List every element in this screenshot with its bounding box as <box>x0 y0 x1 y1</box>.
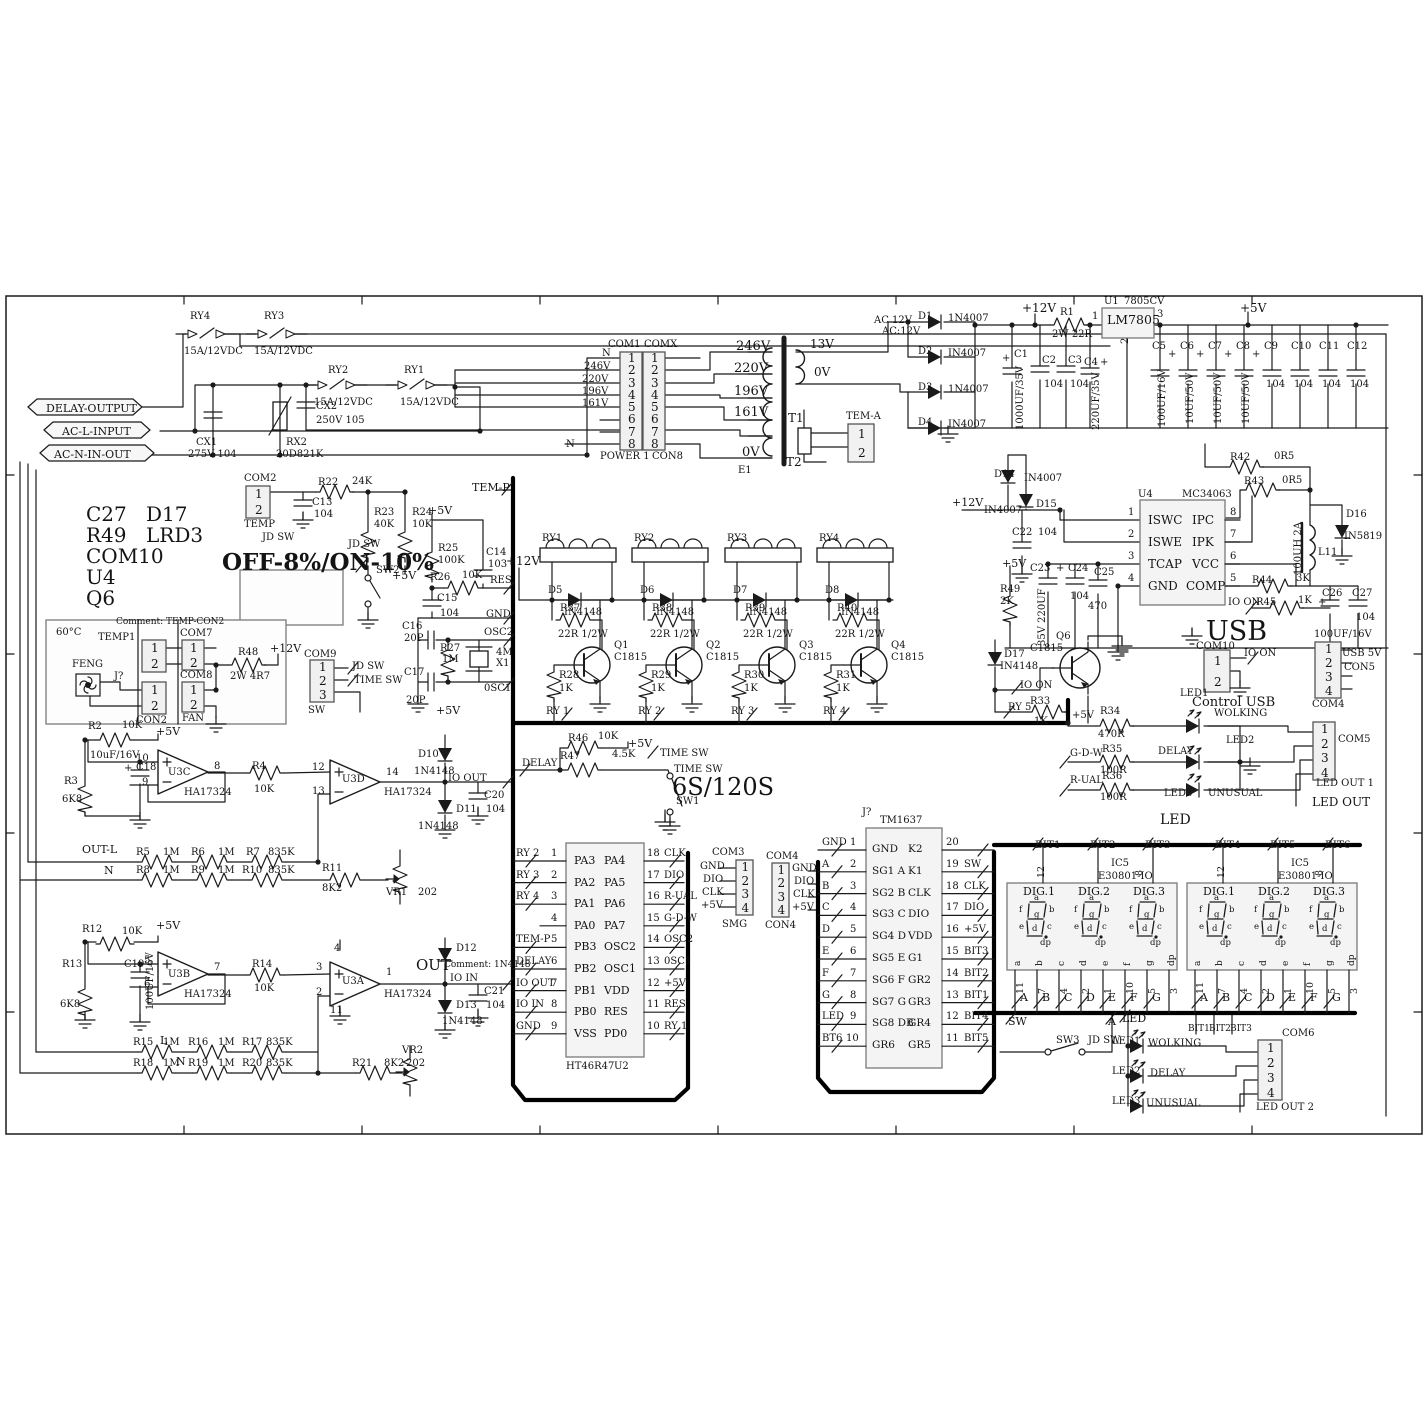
label-ry-1-145: RY 1 <box>546 707 569 717</box>
label-10k-504: 10K <box>122 721 142 731</box>
label-ry1-296: RY1 <box>404 366 424 376</box>
label-n-537: N <box>104 865 114 876</box>
label-+12v-428: +12V <box>270 643 301 654</box>
label-f-203: f <box>1129 906 1132 915</box>
pin-con2-2: 2 <box>151 700 159 712</box>
label-comx-309: COMX <box>644 340 677 350</box>
label-1n4148-527: 1N4148 <box>418 822 459 832</box>
label-bit5-234: BIT5 <box>1270 840 1296 851</box>
label-j-420: J? <box>114 672 123 682</box>
label-22r-1-2w-150: 22R 1/2W <box>650 630 700 640</box>
label-104-529: 104 <box>486 805 505 815</box>
label-ry3-156: RY3 <box>727 534 747 544</box>
label-20-107: 20 <box>946 838 959 848</box>
label-13-519: 13 <box>312 787 325 797</box>
label-196v-319: 196V <box>734 385 768 398</box>
label-c14-397: C14 <box>486 548 506 558</box>
label-d13-584: D13 <box>456 1001 477 1011</box>
label-10-105: 10 <box>846 1034 859 1044</box>
label-2-10: 2 <box>1128 530 1134 540</box>
label-12-68: 12 <box>647 979 660 989</box>
label-103-398: 103 <box>488 560 507 570</box>
label-sw1-557: SW1 <box>676 797 700 807</box>
label-+5v-69: +5V <box>664 979 686 989</box>
label-r42-441: R42 <box>1230 453 1250 463</box>
label-res-73: RES <box>604 1006 628 1017</box>
label-d8-167: D8 <box>825 586 839 596</box>
label-com4-483: COM4 <box>1312 700 1344 710</box>
label-u3d-520: U3D <box>342 775 365 785</box>
label-104-347: 104 <box>1070 380 1089 390</box>
label-b-83: B <box>822 882 829 892</box>
label-104-449: 104 <box>1070 592 1089 602</box>
label-time-sw-432: TIME SW <box>354 676 402 686</box>
label-r18-596: R18 <box>133 1059 153 1069</box>
label-r16-591: R16 <box>188 1038 208 1048</box>
label-k2-108: K2 <box>908 844 923 855</box>
label-c1815-172: C1815 <box>891 653 924 663</box>
label-r28-143: R28 <box>559 671 579 681</box>
label-c-273: c <box>1238 961 1247 966</box>
label-d17-473: D17 <box>1004 650 1025 660</box>
label-q2-151: Q2 <box>706 641 721 651</box>
label-f-227: F <box>1130 992 1138 1003</box>
label-gnd-79: GND <box>872 844 898 855</box>
label-1k-480: 1K <box>1034 717 1048 727</box>
label-gr6-106: GR6 <box>872 1040 895 1051</box>
label-c25-450: C25 <box>1094 568 1114 578</box>
label-n-307: N <box>566 440 575 450</box>
label-+5v-505: +5V <box>156 726 180 737</box>
label-a-625: A <box>1108 1016 1116 1027</box>
label-clk-51: CLK <box>664 849 686 859</box>
label-tem-a-326: TEM-A <box>846 412 881 422</box>
label-r13-564: R13 <box>62 960 82 970</box>
label-1-8: 1 <box>1128 508 1134 518</box>
label-in4148-474: IN4148 <box>1000 662 1038 672</box>
label-220uf-35v-350: 220UF/35V <box>1092 372 1102 430</box>
label-com6-636: COM6 <box>1282 1029 1314 1039</box>
label-ry-3-165: RY 3 <box>731 707 754 717</box>
label-delay-output-298: DELAY-OUTPUT <box>46 403 137 414</box>
label-22r-1-2w-170: 22R 1/2W <box>835 630 885 640</box>
pin-com4r-3: 3 <box>1325 671 1333 683</box>
pin-com3-3: 3 <box>742 888 750 900</box>
label-r-ual-490: R-UAL <box>1070 776 1103 786</box>
label-835k-543: 835K <box>268 866 295 876</box>
label-g-228: g <box>1146 960 1155 966</box>
label-ry-4-30: RY 4 <box>516 892 539 902</box>
label-r10-542: R10 <box>242 866 262 876</box>
label-f-225: f <box>1124 963 1133 966</box>
label-e-279: e <box>1282 961 1291 966</box>
label-c17-412: C17 <box>404 668 424 678</box>
label-led-out-2-637: LED OUT 2 <box>1256 1103 1314 1113</box>
label-r49-374: R49 <box>86 525 127 545</box>
label-dp-231: dp <box>1168 954 1177 966</box>
label-0v-323: 0V <box>814 366 830 378</box>
label-dp-248: dp <box>1220 939 1231 948</box>
label-pa7-61: PA7 <box>604 920 625 931</box>
label-+5v-391: +5V <box>428 505 452 516</box>
label-clk-612: CLK <box>702 888 724 898</box>
label-11-71: 11 <box>647 1000 660 1010</box>
label-ipc-17: IPC <box>1192 514 1214 526</box>
label-com7-423: COM7 <box>180 629 212 639</box>
label-100r-492: 100R <box>1100 793 1127 803</box>
label-e-224: E <box>1108 992 1116 1003</box>
label-12-181: 12 <box>1037 866 1047 878</box>
label-7-18: 7 <box>1230 530 1236 540</box>
label-20d821k-304: 20D821K <box>276 450 323 460</box>
label-2w-22r-340: 2W 22R <box>1052 330 1092 340</box>
label-u3c-513: U3C <box>168 768 190 778</box>
label-a-250: a <box>1269 894 1274 903</box>
label-4-33: 4 <box>551 914 557 924</box>
label-e-222: e <box>1102 961 1111 966</box>
label-c24-448: C24 <box>1068 564 1088 574</box>
label-100k-396: 100K <box>438 556 465 566</box>
label-ha17324-579: HA17324 <box>384 990 432 1000</box>
label-io-on-477: IO ON <box>1020 681 1052 691</box>
label-a-241: a <box>1214 894 1219 903</box>
label-ac-n-in-out-300: AC-N-IN-OUT <box>54 449 131 460</box>
label-1k-463: 1K <box>1298 596 1312 606</box>
label-ry2-146: RY2 <box>634 534 654 544</box>
label-pa6-58: PA6 <box>604 898 625 909</box>
label-io-in-44: IO IN <box>516 1000 544 1010</box>
pin-com9-1: 1 <box>319 661 327 673</box>
label-104-365: 104 <box>1266 380 1285 390</box>
label-100uf-16v-468: 100UF/16V <box>1314 630 1372 640</box>
label-11-576: 11 <box>330 1006 343 1016</box>
pin-com4l-3: 3 <box>778 891 786 903</box>
label-2-574: 2 <box>316 988 322 998</box>
label-tem-p-35: TEM-P <box>516 935 550 945</box>
label-c12-370: C12 <box>1347 342 1367 352</box>
label-r4-516: R4 <box>252 762 266 772</box>
label-q1-141: Q1 <box>614 641 629 651</box>
label-r27-408: R27 <box>440 644 460 654</box>
label-d-199: d <box>1087 925 1092 934</box>
label-jd-sw-431: JD SW <box>352 662 384 672</box>
label-196v-313: 196V <box>582 387 608 397</box>
label-pd0-76: PD0 <box>604 1028 627 1039</box>
label-r31-173: R31 <box>836 671 856 681</box>
label-tm1637-614: TM1637 <box>880 816 922 826</box>
label-2-5: 2 <box>1121 338 1131 344</box>
label-r48-426: R48 <box>238 648 258 658</box>
label-led-out-502: LED OUT <box>1312 796 1370 808</box>
label-a-202: a <box>1144 894 1149 903</box>
label-d16-457: D16 <box>1346 510 1367 520</box>
label-220v-318: 220V <box>734 362 768 375</box>
label-1m-539: 1M <box>163 866 180 876</box>
label-+-362: + <box>1252 350 1260 360</box>
label-g-262: g <box>1324 911 1329 920</box>
label-gnd-618: GND <box>792 864 817 874</box>
label-d12-581: D12 <box>456 944 477 954</box>
pin-com4r-4: 4 <box>1325 685 1333 697</box>
label-8k2-545: 8K2 <box>322 884 342 894</box>
label-u2-607: U2 <box>614 1062 629 1072</box>
pin-com10-1: 1 <box>1214 655 1222 667</box>
label-161v-320: 161V <box>734 406 768 419</box>
label-0r5-444: 0R5 <box>1282 476 1302 486</box>
label-d1-330: D1 <box>918 312 932 322</box>
label-+-446: + <box>1056 564 1064 574</box>
label-bit1-176: BIT1 <box>1035 840 1061 851</box>
pin-com4r-2: 2 <box>1325 657 1333 669</box>
label-+-465: + <box>1318 598 1326 608</box>
label-io-out-41: IO OUT <box>516 979 555 989</box>
label-b-186: b <box>1049 906 1054 915</box>
label-1n4007-331: 1N4007 <box>948 314 989 324</box>
label-c10-366: C10 <box>1291 342 1311 352</box>
label-3-573: 3 <box>316 963 322 973</box>
label-r46-549: R46 <box>568 734 588 744</box>
label-b-195: b <box>1104 906 1109 915</box>
label-+5v-351: +5V <box>1240 302 1266 314</box>
label-e-92: E <box>822 947 829 957</box>
label-r2-503: R2 <box>88 722 102 732</box>
label-18-112: 18 <box>946 882 959 892</box>
label-in4007-435: IN4007 <box>1024 474 1062 484</box>
label-835k-536: 835K <box>268 848 295 858</box>
label-202-547: 202 <box>418 888 437 898</box>
label-+5v-560: +5V <box>156 920 180 931</box>
label-60-c-417: 60°C <box>56 628 81 638</box>
pin-com5-4: 4 <box>1321 767 1329 779</box>
label-35v-220uf-447: 35V 220UF <box>1038 588 1048 646</box>
label-c11-368: C11 <box>1319 342 1339 352</box>
label-c15-402: C15 <box>437 594 457 604</box>
label-vr2-604: VR2 <box>402 1046 423 1056</box>
label-gnd-77: GND <box>822 838 847 848</box>
label-d-276: d <box>1260 960 1269 966</box>
label-10k-400: 10K <box>462 571 482 581</box>
label-e-188: e <box>1019 923 1024 932</box>
label-ry-3-27: RY 3 <box>516 871 539 881</box>
pin-com1-1: 1 <box>628 352 636 364</box>
label-220v-312: 220V <box>582 375 608 385</box>
label-pa3-26: PA3 <box>574 855 595 866</box>
label-pb2-40: PB2 <box>574 963 596 974</box>
label-6-567: 6 <box>144 980 150 990</box>
label-sg4-d-91: SG4 D <box>872 931 906 942</box>
label-835k-601: 835K <box>266 1059 293 1069</box>
label-10uf-16v-506: 10uF/16V <box>90 751 139 761</box>
label-bit3-178: BIT3 <box>1145 840 1171 851</box>
label-d-89: D <box>822 925 830 935</box>
label-a-80: A <box>822 860 829 870</box>
label-e-254: e <box>1254 923 1259 932</box>
label-8-99: 8 <box>850 991 856 1001</box>
label-14-62: 14 <box>647 935 660 945</box>
label-c1815-162: C1815 <box>799 653 832 663</box>
label-u1-0: U1 <box>1104 297 1119 307</box>
label-vdd-120: VDD <box>908 931 932 942</box>
label-202-605: 202 <box>406 1059 425 1069</box>
label-sw-622: SW <box>1008 1016 1027 1027</box>
label-ry2-294: RY2 <box>328 366 348 376</box>
pin-com5-3: 3 <box>1321 752 1329 764</box>
label-17-115: 17 <box>946 903 959 913</box>
label-+-349: + <box>1100 358 1108 368</box>
label-dio-54: DIO <box>664 871 684 881</box>
label-rx2-303: RX2 <box>286 438 307 448</box>
label-f-95: F <box>822 969 829 979</box>
label-bit1-128: BIT1 <box>964 991 988 1001</box>
schematic-canvas: 1234567812345678121212121212123121234123… <box>0 0 1428 1428</box>
label-com5-500: COM5 <box>1338 735 1370 745</box>
label-2-81: 2 <box>850 860 856 870</box>
label-pb3-37: PB3 <box>574 941 596 952</box>
label-osc2-63: OSC2 <box>664 935 693 945</box>
label-5-566: 5 <box>144 956 150 966</box>
label-com10-376: COM10 <box>86 546 164 566</box>
label-led1-627: LED1 <box>1112 1037 1140 1047</box>
label-c2-344: C2 <box>1042 356 1056 366</box>
label-11-133: 11 <box>946 1034 959 1044</box>
label-1-78: 1 <box>850 838 856 848</box>
label-k1-111: K1 <box>908 866 923 877</box>
label-usb-5v-481: USB 5V <box>1342 649 1381 659</box>
label-con8-316: CON8 <box>652 452 683 462</box>
label-246v-311: 246V <box>584 362 610 372</box>
label-vdd-70: VDD <box>604 985 630 996</box>
label-0r5-442: 0R5 <box>1274 452 1294 462</box>
label-bit2-630: BIT2 <box>1209 1025 1231 1034</box>
label-6-20: 6 <box>1230 552 1236 562</box>
label-7-42: 7 <box>551 979 557 989</box>
label-temp-381: TEMP <box>244 520 275 530</box>
label-1m-590: 1M <box>163 1038 180 1048</box>
pin-com5-1: 1 <box>1321 723 1329 735</box>
label-e-245: e <box>1199 923 1204 932</box>
label-20p-406: 20P <box>404 634 423 644</box>
label-tem-p-416: TEM-P <box>472 482 510 493</box>
label-17-53: 17 <box>647 871 660 881</box>
label-dp-209: dp <box>1150 939 1161 948</box>
pin-com3-2: 2 <box>742 875 750 887</box>
label-bit1-629: BIT1 <box>1188 1025 1210 1034</box>
label-sw3-623: SW3 <box>1056 1036 1080 1046</box>
label-1-25: 1 <box>551 849 557 859</box>
label-bit4-233: BIT4 <box>1215 840 1241 851</box>
label-c22-439: C22 <box>1012 528 1032 538</box>
label-104-369: 104 <box>1322 380 1341 390</box>
label-com1-308: COM1 <box>608 340 640 350</box>
label-dio-117: DIO <box>908 909 929 920</box>
pin-com6-4: 4 <box>1267 1087 1275 1099</box>
label-+12v-436: +12V <box>952 497 983 508</box>
label-in4007-437: IN4007 <box>984 506 1022 516</box>
pin-com4l-4: 4 <box>778 904 786 916</box>
label-d6-147: D6 <box>640 586 654 596</box>
pin-com7-1: 1 <box>190 642 198 654</box>
label-fan-425: FAN <box>182 714 204 724</box>
label-d-247: d <box>1212 925 1217 934</box>
label-c-255: c <box>1282 923 1287 932</box>
label-a-259: a <box>1324 894 1329 903</box>
label-104-345: 104 <box>1044 380 1063 390</box>
label-c1815-142: C1815 <box>614 653 647 663</box>
label-3-4: 3 <box>1157 310 1163 320</box>
label-1k-164: 1K <box>744 684 758 694</box>
label-4m-410: 4M <box>496 648 513 658</box>
label-io-out-525: IO OUT <box>448 774 487 784</box>
label-a-184: a <box>1034 894 1039 903</box>
label-1k-174: 1K <box>836 684 850 694</box>
label-dp-266: dp <box>1330 939 1341 948</box>
label-r7-535: R7 <box>246 848 260 858</box>
label-led3-634: LED3 <box>1112 1097 1140 1107</box>
label-+5v-484: +5V <box>1072 711 1094 721</box>
label-iswc-9: ISWC <box>1148 514 1182 526</box>
label-12-130: 12 <box>946 1012 959 1022</box>
label-1-578: 1 <box>386 968 392 978</box>
pin-com1-8: 8 <box>628 438 636 450</box>
label-ry4-290: RY4 <box>190 312 210 322</box>
label-c20-528: C20 <box>484 791 504 801</box>
label-b-252: b <box>1284 906 1289 915</box>
label-io-on-471: IO ON <box>1244 649 1276 659</box>
label-0sc1-414: 0SC1 <box>484 684 511 694</box>
pin-comx-5: 5 <box>651 401 659 413</box>
pin-com4l-2: 2 <box>778 877 786 889</box>
label-c3-346: C3 <box>1068 356 1082 366</box>
label-con4-617: CON4 <box>765 921 796 931</box>
pin-comx-6: 6 <box>651 413 659 425</box>
label-f-242: f <box>1199 906 1202 915</box>
label-d4-336: D4 <box>918 418 932 428</box>
label-9-48: 9 <box>551 1022 557 1032</box>
label-b-261: b <box>1339 906 1344 915</box>
label-18-50: 18 <box>647 849 660 859</box>
label-r38-149: R38 <box>652 604 672 614</box>
label-b-215: B <box>1042 992 1050 1003</box>
label-0v-321: 0V <box>742 446 760 459</box>
label-+5v-119: +5V <box>964 925 986 935</box>
label-104-587: 104 <box>486 1001 505 1011</box>
label-104-371: 104 <box>1350 380 1369 390</box>
label-gnd-47: GND <box>516 1022 541 1032</box>
label-c13-385: C13 <box>312 498 332 508</box>
label-ac-l-input-299: AC-L-INPUT <box>62 426 131 437</box>
label-sg7-g-100: SG7 G <box>872 997 906 1008</box>
label-gr4-132: GR4 <box>908 1018 931 1029</box>
label-q6-475: Q6 <box>1056 632 1071 642</box>
label-dio-116: DIO <box>964 903 984 913</box>
label-sg1-a-82: SG1 A <box>872 866 905 877</box>
label-d-256: d <box>1267 925 1272 934</box>
label-+5v-394: +5V <box>392 570 416 581</box>
pin-com3-1: 1 <box>742 861 750 873</box>
pin-com4l-1: 1 <box>778 864 786 876</box>
label-10k-559: 10K <box>122 927 142 937</box>
label-comment-1n4148-582: Comment: 1N4148 <box>444 961 531 970</box>
label-835k-594: 835K <box>266 1038 293 1048</box>
pin-com2-1: 1 <box>255 488 263 500</box>
label-f-185: f <box>1019 906 1022 915</box>
label-+12v-433: +12V <box>506 555 540 567</box>
label-16-56: 16 <box>647 892 660 902</box>
pin-com1-5: 5 <box>628 401 636 413</box>
label-gr3-129: GR3 <box>908 997 931 1008</box>
label-r6-533: R6 <box>191 848 205 858</box>
label-c27-372: C27 <box>86 504 127 524</box>
